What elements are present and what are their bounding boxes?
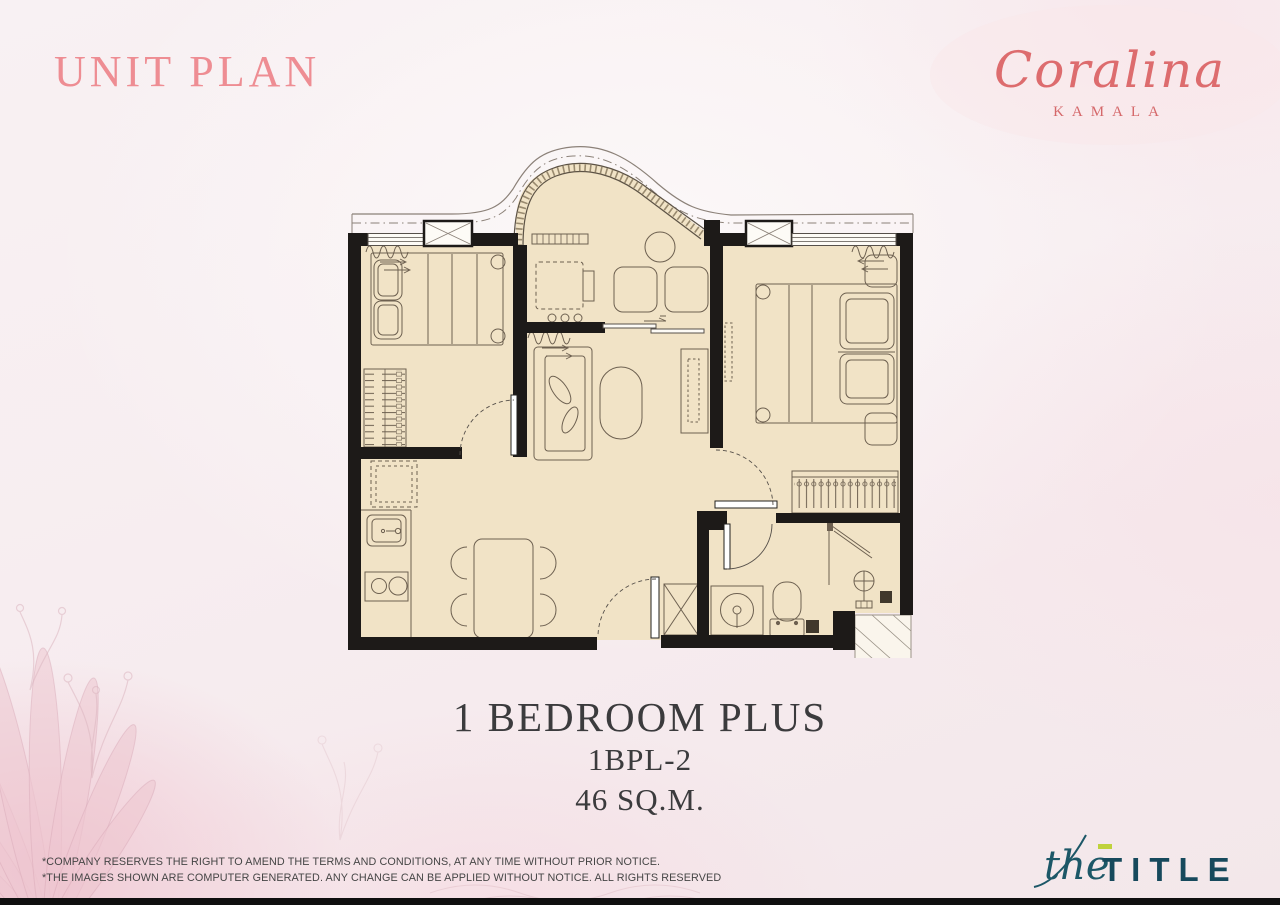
bottom-bar [0,898,1280,905]
bedroom2-door-leaf [511,395,517,455]
sliding-door [603,324,656,328]
coral-sprig-outline [17,605,133,779]
disclaimer-line-2: *THE IMAGES SHOWN ARE COMPUTER GENERATED… [42,871,721,887]
entry-door-leaf [651,577,659,638]
floor-drain [806,620,819,633]
sliding-door [651,329,704,333]
floor-plan [345,143,925,658]
brand-location: KAMALA [980,104,1240,121]
brand-name: Coralina [980,40,1240,100]
wall-living-balcony [527,322,605,333]
ac-ledge [855,615,911,658]
unit-area: 46 SQ.M. [340,780,940,820]
bathroom-door-leaf [724,524,730,569]
developer-logo: the TITLE [1032,823,1247,898]
wall-bedroom2-south [348,447,462,459]
page-title: UNIT PLAN [54,46,320,97]
unit-type: 1 BEDROOM PLUS [340,694,940,740]
unit-code: 1BPL-2 [340,740,940,780]
disclaimer: *COMPANY RESERVES THE RIGHT TO AMEND THE… [42,855,721,886]
brand-logo: Coralina KAMALA [980,40,1240,121]
logo-name: TITLE [1102,851,1239,888]
wall-living-master [710,233,723,448]
unit-plan-page: UNIT PLAN Coralina KAMALA [0,0,1280,905]
disclaimer-line-1: *COMPANY RESERVES THE RIGHT TO AMEND THE… [42,855,721,871]
unit-caption: 1 BEDROOM PLUS 1BPL-2 46 SQ.M. [340,694,940,820]
wall-master-south [776,513,913,523]
wall-bathroom-west [697,523,709,648]
master-door-leaf [715,501,777,508]
